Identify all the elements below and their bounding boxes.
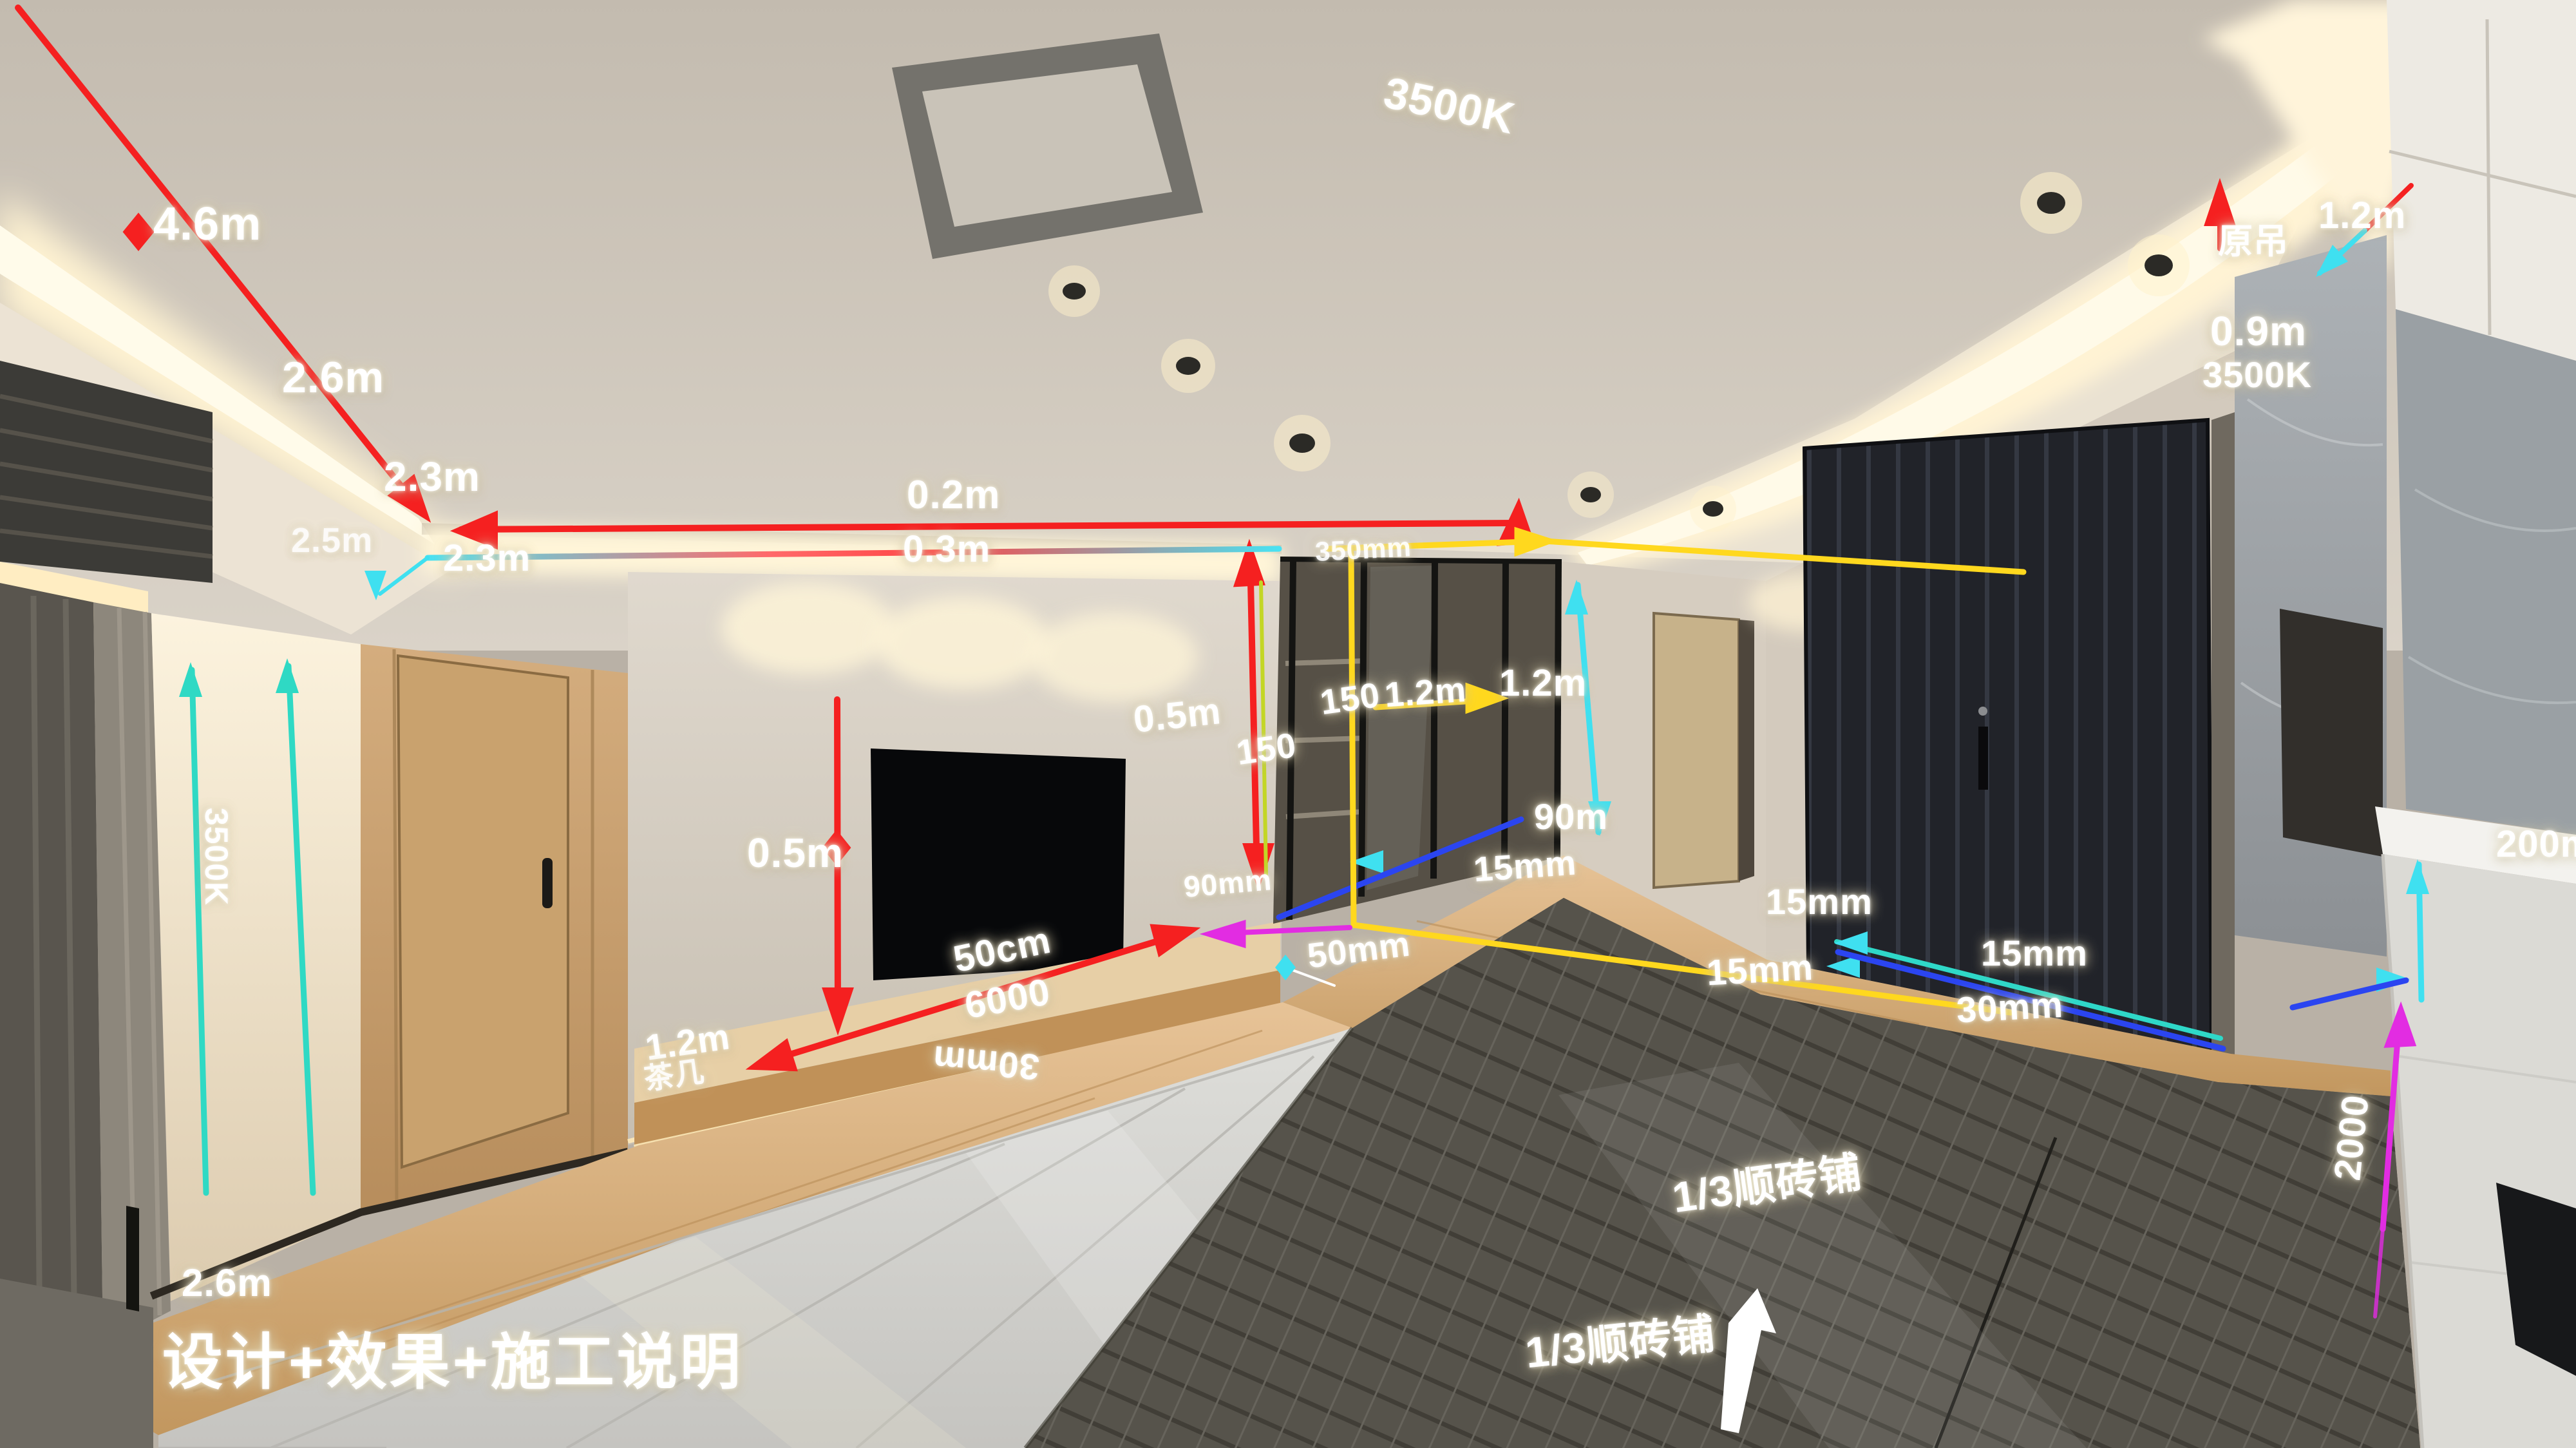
dim-label-200mm: 200mm <box>2496 826 2576 863</box>
red-dimension-lines <box>18 8 2411 1068</box>
dim-label-0-5m-glass: 0.5m <box>1132 692 1223 739</box>
dimension-annotations <box>0 0 2576 1448</box>
dim-label-0-9m: 0.9m <box>2210 310 2307 352</box>
dim-label-0-3m: 0.3m <box>903 531 990 568</box>
floor-direction-arrow <box>1721 1288 1776 1433</box>
dim-label-2000: 2000 <box>2329 1093 2375 1182</box>
dim-label-1-2m-y: 1.2m <box>1383 672 1468 713</box>
dim-label-90mm: 90mm <box>1182 864 1273 902</box>
arrow-right-icon <box>1517 531 1549 553</box>
dim-label-2-3m-b: 2.3m <box>443 540 531 577</box>
kelvin-label-right: 3500K <box>2202 357 2312 393</box>
arrow-down-icon <box>365 571 386 600</box>
dim-label-350mm: 350mm <box>1314 533 1412 566</box>
blue-dimension-lines <box>1279 819 2406 1049</box>
dim-label-2-6m-floor: 2.6m <box>182 1264 272 1302</box>
dim-label-15mm-a: 15mm <box>1766 884 1873 920</box>
dim-label-30mm-door: 30mm <box>1956 987 2065 1029</box>
dim-label-1-2m-tr: 1.2m <box>2318 197 2406 234</box>
dim-label-15mm-hall: 15mm <box>1472 845 1577 887</box>
arrow-right-icon <box>1154 928 1191 952</box>
diamond-marker-icon <box>127 218 150 246</box>
arrow-up-icon <box>2406 859 2429 894</box>
arrow-down-icon <box>826 991 849 1025</box>
dim-label-90m: 90m <box>1534 799 1608 835</box>
diamond-marker-icon <box>1275 955 1296 980</box>
dim-label-2-5m: 2.5m <box>291 523 373 558</box>
arrow-up-icon <box>1238 549 1261 584</box>
dim-label-30mm-flip: 30mm <box>931 1040 1041 1085</box>
watermark-text: 设计+效果+施工说明 <box>162 1332 743 1393</box>
dim-label-4-6m: 4.6m <box>153 201 261 247</box>
arrow-left-icon <box>755 1043 793 1068</box>
arrow-up-icon <box>2388 1010 2412 1045</box>
dim-label-15mm-b: 15mm <box>1706 949 1815 991</box>
dim-label-2-3m: 2.3m <box>384 456 480 497</box>
dim-label-150-b: 150 <box>1235 728 1299 770</box>
cyan-dimension-lines <box>179 231 2429 1193</box>
arrow-up-icon <box>1721 1288 1776 1433</box>
dim-label-2-6m: 2.6m <box>282 356 384 399</box>
annotated-interior-screenshot: 4.6m 2.6m 2.3m 2.5m 3500K 0.2m 0.3m 2.3m… <box>0 0 2576 1448</box>
dim-label-150-a: 150 <box>1318 678 1383 720</box>
dim-label-0-2m: 0.2m <box>907 475 1000 515</box>
arrow-up-icon <box>179 662 202 697</box>
dim-label-15mm-c: 15mm <box>1981 935 2088 971</box>
arrow-up-icon <box>1565 580 1588 614</box>
arrow-left-icon <box>1209 924 1243 944</box>
note-label-yuandiao: 原吊 <box>2218 224 2289 259</box>
dim-label-0-5m-tv: 0.5m <box>747 832 844 873</box>
kelvin-label-left: 3500K <box>200 808 232 906</box>
arrow-right-icon <box>1468 687 1501 710</box>
dim-label-1-2m-c: 1.2m <box>1499 665 1587 702</box>
arrow-up-icon <box>2208 188 2231 223</box>
arrow-up-icon <box>276 658 299 693</box>
note-label-chaji: 茶几 <box>642 1056 706 1094</box>
